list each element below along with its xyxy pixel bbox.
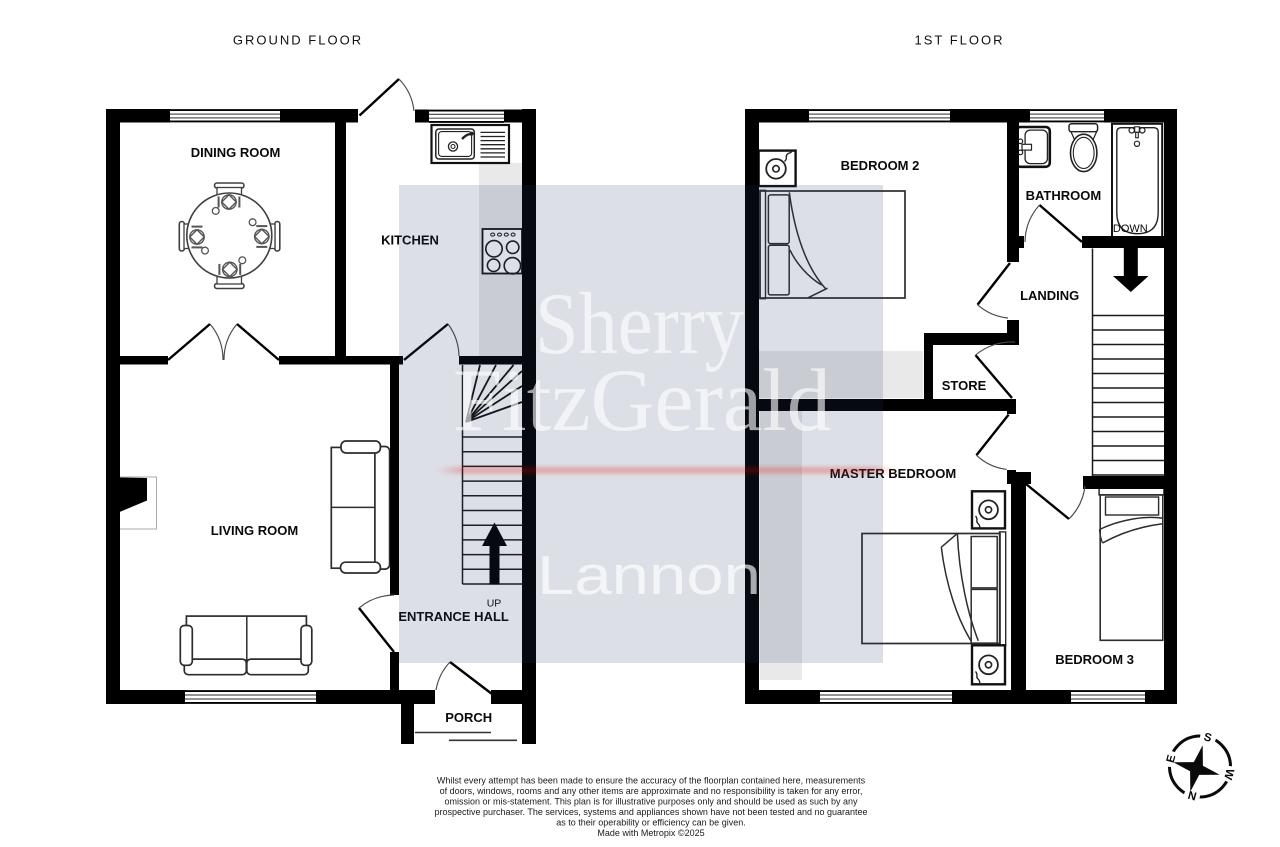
svg-text:Lannon: Lannon (537, 544, 761, 606)
svg-text:PORCH: PORCH (445, 710, 492, 725)
svg-text:of doors, windows, rooms and a: of doors, windows, rooms and any other i… (440, 786, 863, 796)
svg-text:1ST FLOOR: 1ST FLOOR (914, 33, 1004, 48)
svg-text:Whilst every attempt has been: Whilst every attempt has been made to en… (437, 776, 866, 786)
svg-text:GROUND FLOOR: GROUND FLOOR (233, 33, 363, 48)
svg-text:LIVING ROOM: LIVING ROOM (211, 523, 298, 538)
svg-text:FitzGerald: FitzGerald (453, 352, 831, 450)
svg-text:BATHROOM: BATHROOM (1026, 188, 1102, 203)
svg-text:BEDROOM 3: BEDROOM 3 (1055, 652, 1134, 667)
svg-text:LANDING: LANDING (1020, 288, 1079, 303)
svg-text:DOWN: DOWN (1113, 223, 1148, 235)
svg-text:BEDROOM 2: BEDROOM 2 (841, 158, 920, 173)
svg-text:as to their operability or eff: as to their operability or efficiency ca… (556, 818, 745, 828)
svg-text:STORE: STORE (942, 378, 987, 393)
svg-text:Made with Metropix ©2025: Made with Metropix ©2025 (597, 828, 704, 838)
svg-text:DINING ROOM: DINING ROOM (191, 145, 281, 160)
svg-text:prospective purchaser. The ser: prospective purchaser. The services, sys… (434, 807, 867, 817)
svg-text:omission or mis-statement. Thi: omission or mis-statement. This plan is … (444, 797, 858, 807)
